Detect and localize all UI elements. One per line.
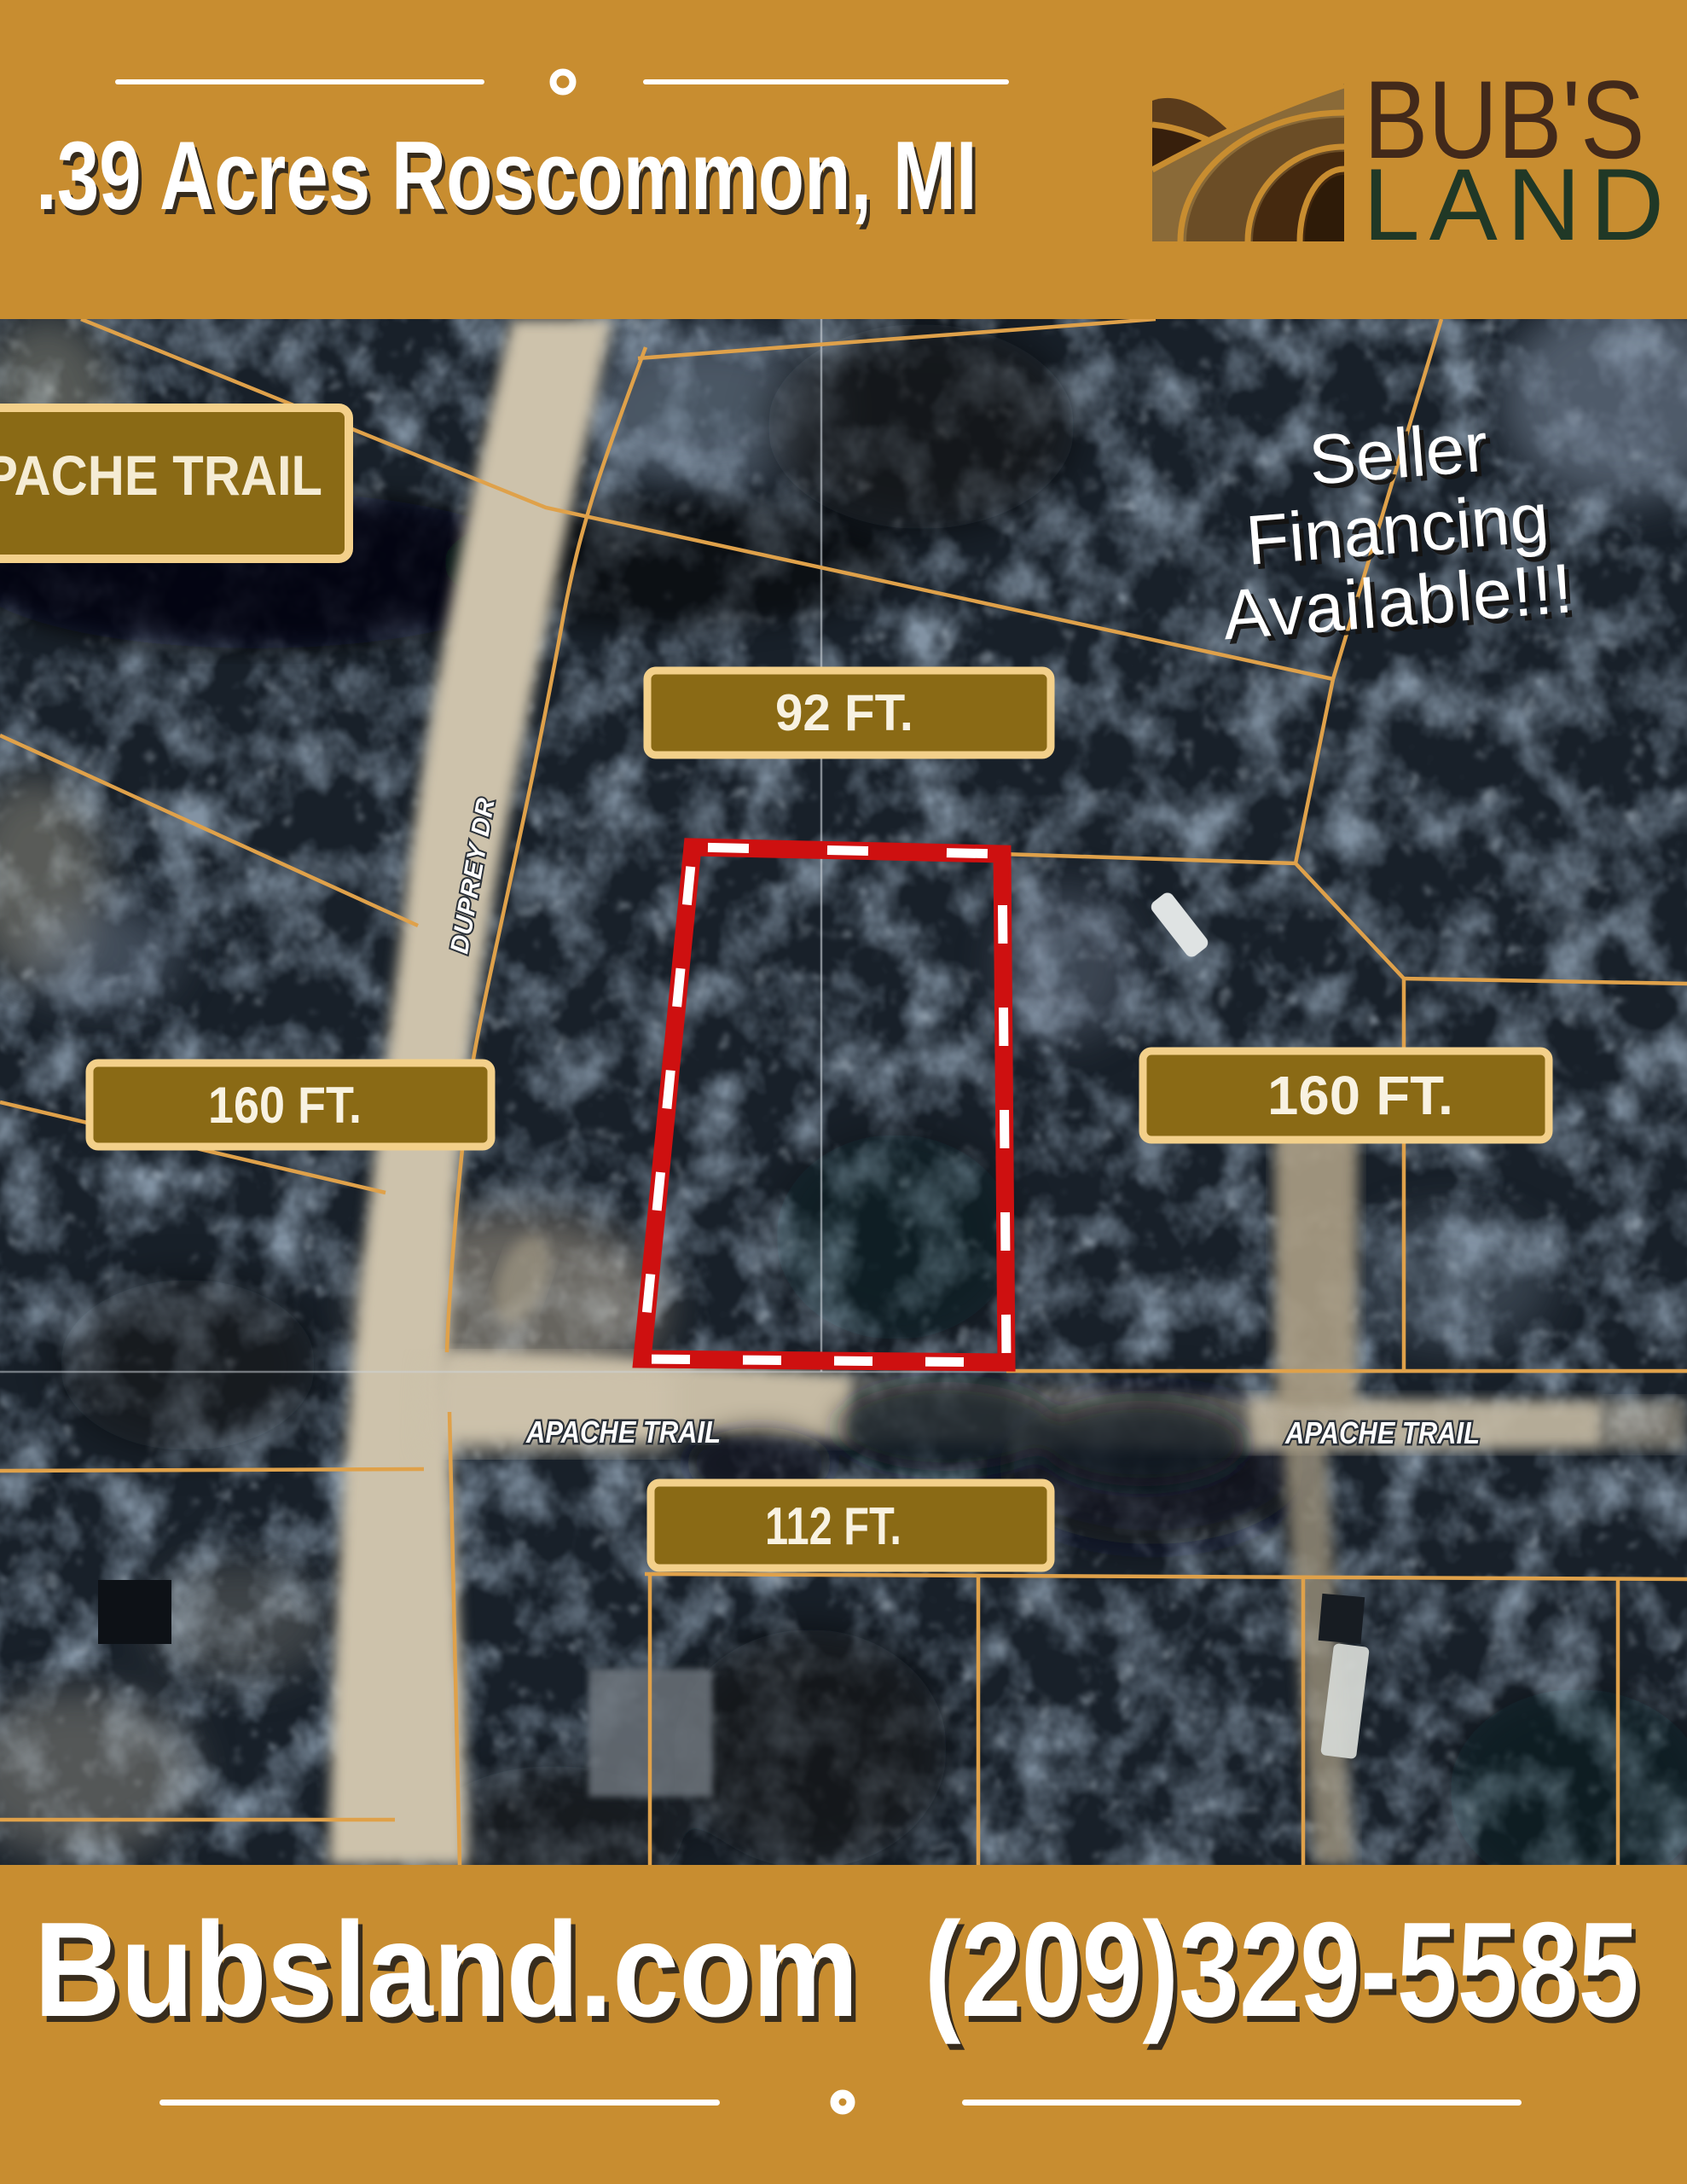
svg-text:160 FT.: 160 FT.: [1267, 1065, 1453, 1126]
svg-text:APACHE TRAIL: APACHE TRAIL: [1284, 1415, 1480, 1450]
svg-text:112 FT.: 112 FT.: [765, 1497, 901, 1556]
svg-text:LAND: LAND: [1363, 148, 1673, 256]
svg-text:APACHE TRAIL: APACHE TRAIL: [0, 444, 322, 507]
svg-text:92 FT.: 92 FT.: [775, 684, 913, 741]
svg-text:APACHE TRAIL: APACHE TRAIL: [525, 1414, 721, 1449]
svg-text:160 FT.: 160 FT.: [208, 1077, 362, 1134]
